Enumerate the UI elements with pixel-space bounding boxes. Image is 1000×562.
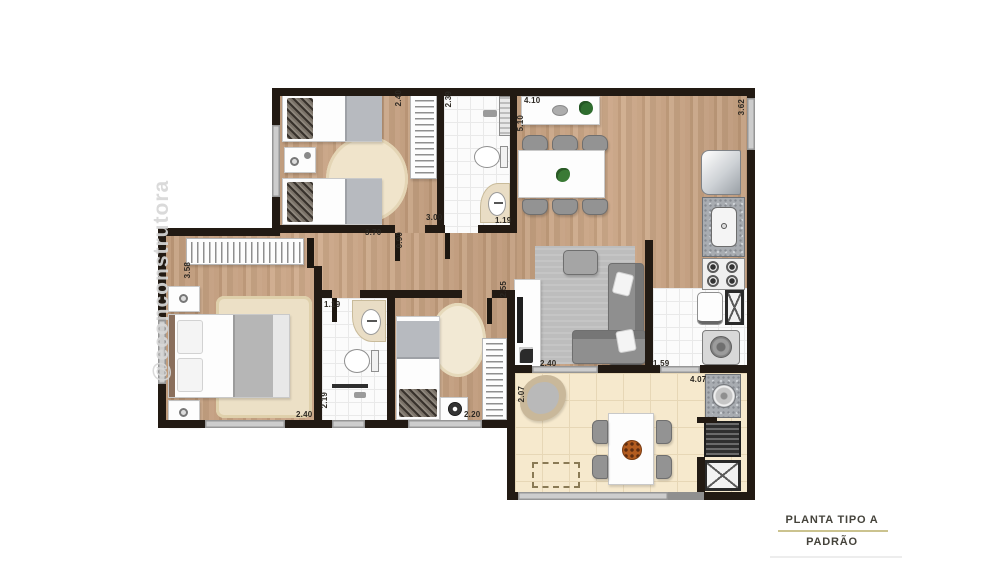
food-platter-icon	[622, 440, 642, 460]
dimension-label: 3.58	[183, 262, 192, 278]
kitchen-counter	[702, 197, 745, 257]
fridge	[701, 150, 741, 195]
lounge-cushion	[527, 382, 559, 414]
master-wardrobe	[186, 238, 304, 265]
bed-pillow	[177, 358, 203, 392]
grill	[704, 421, 741, 457]
closet-hangers	[191, 242, 301, 263]
shower-glass	[332, 384, 368, 388]
terrace-chair	[592, 455, 608, 479]
shower-head-icon	[483, 110, 497, 117]
sofa-pillow	[615, 329, 637, 354]
bath1-door	[445, 233, 450, 259]
sink-basin	[361, 309, 381, 335]
future-furniture-outline	[532, 462, 580, 488]
wall-left-connector	[158, 228, 280, 236]
sink-basin	[488, 192, 506, 216]
wall-bath1-bottom-left	[425, 225, 445, 233]
dining-chair	[582, 199, 608, 215]
dimension-label: 2.19	[320, 392, 329, 408]
wall-bath1-living	[510, 88, 517, 233]
bedroom2-closet	[482, 338, 507, 420]
pouf	[563, 250, 598, 275]
faucet-icon	[367, 320, 377, 322]
floor-plan-canvas: 2.40 2.39 4.10 5.10 3.62 3.00 1.19 3.70 …	[0, 0, 1000, 562]
bed-blanket	[345, 179, 382, 224]
living-right-window	[747, 98, 755, 150]
shaft-duct	[725, 290, 744, 325]
dimension-label: 1.19	[324, 300, 340, 309]
dimension-label: 4.07	[690, 375, 706, 384]
wall-terrace-top-c	[700, 365, 747, 373]
terrace-sliding-door	[518, 492, 668, 500]
dimension-label: 1.59	[653, 359, 669, 368]
burner-icon	[707, 261, 719, 273]
dimension-label: 3.62	[737, 99, 746, 115]
wall-bath2-bedroom2	[387, 298, 395, 428]
bed-pillows	[287, 98, 313, 139]
master-bed	[168, 314, 290, 398]
title-rule	[778, 530, 888, 532]
burner-icon	[726, 261, 738, 273]
toilet-tank	[500, 146, 508, 168]
burner-icon	[707, 275, 719, 287]
water-heater	[697, 292, 723, 325]
bed-foot-throw	[399, 389, 437, 417]
dining-chair	[522, 199, 548, 215]
wall-corridor-b	[360, 290, 462, 298]
washer-drum-icon	[710, 336, 732, 358]
dimension-label: 2.39	[444, 91, 453, 107]
blanket-fold	[273, 315, 289, 397]
bed-blanket	[233, 315, 273, 397]
wall-grill-stub	[697, 417, 717, 423]
decor-ball-icon	[304, 152, 311, 159]
dimension-label: 2.40	[296, 410, 312, 419]
dimension-label: 2.40	[394, 90, 403, 106]
plan-subtitle: PADRÃO	[742, 536, 922, 548]
tv-icon	[517, 297, 523, 343]
dimension-label: 2.07	[517, 386, 526, 402]
bed-blanket	[345, 95, 382, 141]
dimension-label: 5.10	[516, 115, 525, 131]
bath2-bottom-window	[332, 420, 365, 428]
fan-icon	[448, 402, 462, 416]
plant-icon	[579, 101, 593, 115]
bedroom1-closet	[410, 95, 437, 179]
wall-living-service	[645, 240, 653, 373]
bed-pillow	[177, 320, 203, 354]
master-door	[307, 238, 314, 268]
terrace-shaft	[704, 460, 741, 491]
dimension-label: 2.20	[464, 410, 480, 419]
closet-hangers	[415, 100, 434, 176]
stove	[702, 258, 745, 290]
dining-table	[518, 150, 605, 198]
dimension-label: 3.00	[426, 213, 442, 222]
lamp-icon	[179, 294, 188, 303]
bedroom2-bottom-window	[408, 420, 482, 428]
lower-divider	[770, 556, 902, 558]
plan-title: PLANTA TIPO A	[742, 514, 922, 526]
burner-icon	[726, 275, 738, 287]
closet-hangers	[486, 343, 503, 417]
bed-blanket	[397, 321, 439, 359]
toilet	[474, 146, 500, 168]
wall-bedroom1-bath1	[437, 88, 444, 233]
toilet	[344, 349, 370, 373]
master-bottom-window	[205, 420, 285, 428]
centerpiece-plant-icon	[556, 168, 570, 182]
shower-head-icon	[354, 392, 366, 398]
twin-bed-a	[282, 94, 382, 142]
dining-chair	[552, 135, 578, 151]
terrace-chair	[592, 420, 608, 444]
lamp-icon	[179, 408, 188, 417]
single-bed	[396, 316, 440, 420]
bed-pillows	[287, 182, 313, 222]
round-sink	[712, 384, 736, 408]
twin-bed-b	[282, 178, 382, 225]
dining-chair	[582, 135, 608, 151]
bowl-icon	[552, 105, 568, 116]
dimension-label: 2.40	[540, 359, 556, 368]
faucet-icon	[494, 202, 503, 204]
wall-terrace-top-a	[507, 365, 532, 373]
terrace-counter	[705, 374, 741, 418]
dining-chair	[522, 135, 548, 151]
dimension-label: 0.90	[395, 232, 404, 248]
bedroom1-window	[272, 125, 280, 197]
watermark: @econconstrutora	[150, 182, 176, 382]
wall-terrace-left	[507, 420, 515, 500]
toilet-tank	[371, 350, 379, 372]
dimension-label: 4.10	[524, 96, 540, 105]
terrace-table	[608, 413, 654, 485]
washing-machine	[702, 330, 740, 365]
terrace-chair	[656, 455, 672, 479]
bedroom2-door	[487, 298, 492, 324]
dimension-label: 3.70	[365, 228, 381, 237]
dining-chair	[552, 199, 578, 215]
terrace-door-frame	[668, 492, 704, 500]
dimension-label: 2.55	[499, 281, 508, 297]
speaker-icon	[519, 347, 533, 363]
terrace-chair	[656, 420, 672, 444]
lamp-icon	[290, 157, 299, 166]
bedroom1-nightstand	[284, 147, 316, 173]
wall-bedroom2-terrace	[507, 298, 515, 428]
faucet-icon	[721, 223, 727, 229]
wall-bath1-bottom-right	[478, 225, 517, 233]
dimension-label: 1.19	[495, 216, 511, 225]
